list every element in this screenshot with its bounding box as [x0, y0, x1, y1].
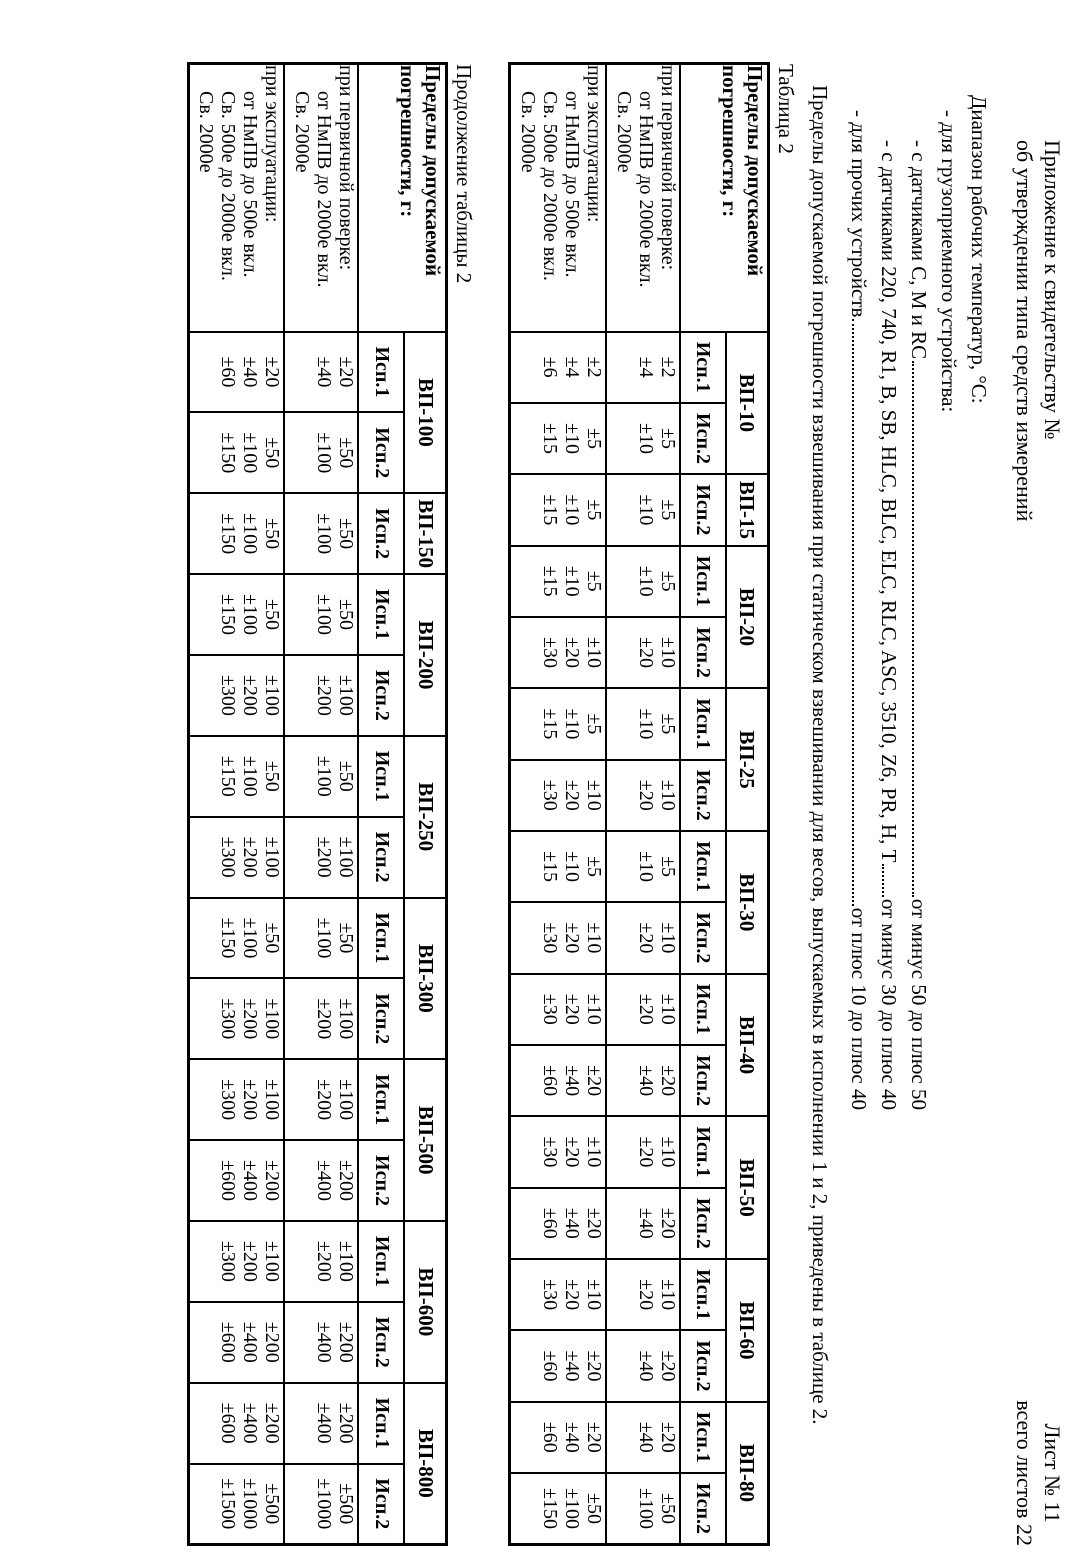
- value-line: ±10: [561, 475, 583, 544]
- operation-values-cell: ±20±40±60: [189, 332, 285, 413]
- value-line: ±100: [262, 656, 284, 735]
- table-corner-label: Пределы допускаемойпогрешности, г:: [680, 64, 769, 332]
- verification-values-cell: ±10±20: [606, 1259, 680, 1330]
- temp-line: - для прочих устройствот плюс 10 до плюс…: [844, 110, 874, 1110]
- value-line: ±10: [635, 547, 657, 616]
- execution-header: Исп.2: [359, 1140, 405, 1221]
- value-line: ±500: [336, 1465, 358, 1543]
- model-header: ВП-10: [726, 332, 769, 475]
- temp-line-value: от плюс 10 до плюс 40: [844, 908, 874, 1110]
- operation-values-cell: ±5±10±15: [510, 688, 606, 759]
- value-line: ±20: [635, 1117, 657, 1186]
- value-line: ±150: [218, 494, 240, 573]
- value-line: ±20: [561, 1260, 583, 1329]
- operation-values-cell: ±100±200±300: [189, 1221, 285, 1302]
- value-line: ±10: [583, 975, 605, 1044]
- value-line: ±100: [240, 494, 262, 573]
- verification-values-cell: ±200±400: [285, 1140, 359, 1221]
- row-label: Св. 2000е: [517, 65, 539, 331]
- value-row: при первичной поверке:от НмПВ до 2000е в…: [285, 64, 359, 1545]
- value-line: ±300: [218, 1222, 240, 1301]
- verification-values-cell: ±100±200: [285, 1221, 359, 1302]
- execution-header: Исп.1: [680, 1402, 726, 1473]
- sheet-number-line2: всего листов 22: [1010, 1400, 1038, 1546]
- execution-header: Исп.1: [680, 831, 726, 902]
- value-line: ±100: [314, 575, 336, 654]
- value-line: ±30: [539, 761, 561, 830]
- operation-values-cell: ±50±100±150: [189, 574, 285, 655]
- value-line: ±20: [657, 1189, 679, 1258]
- value-line: ±15: [539, 832, 561, 901]
- row-label: от НмПВ до 2000е вкл.: [314, 65, 336, 331]
- value-line: ±10: [583, 618, 605, 687]
- model-header: ВП-80: [726, 1402, 769, 1545]
- value-line: ±200: [314, 1222, 336, 1301]
- temperature-lines: - для грузоприемного устройства:- с датч…: [844, 95, 964, 1560]
- row-group-title: при первичной поверке:: [657, 65, 679, 331]
- operation-values-cell: ±100±200±300: [189, 817, 285, 898]
- operation-values-cell: ±100±200±300: [189, 1059, 285, 1140]
- dotted-leader: [882, 864, 885, 896]
- value-line: ±50: [336, 413, 358, 492]
- model-header: ВП-20: [726, 546, 769, 689]
- value-line: ±40: [561, 1046, 583, 1115]
- value-line: ±10: [635, 475, 657, 544]
- value-line: ±100: [336, 656, 358, 735]
- value-line: ±40: [561, 1189, 583, 1258]
- value-line: ±200: [336, 1141, 358, 1220]
- operation-values-cell: ±200±400±600: [189, 1383, 285, 1464]
- table2-caption: Продолжение таблицы 2: [451, 64, 479, 1560]
- value-line: ±40: [635, 1331, 657, 1400]
- value-line: ±20: [262, 333, 284, 412]
- table-corner-label: Пределы допускаемойпогрешности, г:: [359, 64, 448, 332]
- execution-header: Исп.2: [359, 1464, 405, 1545]
- value-line: ±5: [583, 404, 605, 473]
- model-header-row: Пределы допускаемойпогрешности, г:ВП-10В…: [726, 64, 769, 1545]
- value-line: ±200: [262, 1303, 284, 1382]
- value-line: ±400: [314, 1303, 336, 1382]
- value-line: ±50: [262, 575, 284, 654]
- value-line: ±100: [240, 575, 262, 654]
- value-line: ±20: [635, 975, 657, 1044]
- verification-values-cell: ±50±100: [285, 574, 359, 655]
- value-line: ±400: [314, 1141, 336, 1220]
- verification-values-cell: ±50±100: [285, 898, 359, 979]
- value-line: ±10: [657, 618, 679, 687]
- value-line: ±30: [539, 903, 561, 972]
- verification-values-cell: ±10±20: [606, 760, 680, 831]
- value-line: ±100: [336, 818, 358, 897]
- model-header: ВП-500: [405, 1059, 448, 1221]
- value-line: ±4: [561, 333, 583, 402]
- row-label: Св. 500е до 2000е вкл.: [218, 65, 240, 331]
- value-line: ±20: [561, 761, 583, 830]
- value-line: ±20: [561, 1117, 583, 1186]
- row-group-label: при эксплуатации:от НмПВ до 500е вкл.Св.…: [510, 64, 606, 332]
- execution-header: Исп.2: [680, 617, 726, 688]
- verification-values-cell: ±10±20: [606, 617, 680, 688]
- value-line: ±150: [218, 737, 240, 816]
- model-header: ВП-150: [405, 493, 448, 574]
- value-line: ±200: [336, 1384, 358, 1463]
- model-header: ВП-300: [405, 898, 448, 1060]
- verification-values-cell: ±5±10: [606, 474, 680, 545]
- row-label: от НмПВ до 2000е вкл.: [635, 65, 657, 331]
- model-header: ВП-200: [405, 574, 448, 736]
- value-line: ±20: [657, 1403, 679, 1472]
- value-line: ±10: [583, 1260, 605, 1329]
- operation-values-cell: ±5±10±15: [510, 546, 606, 617]
- model-header: ВП-100: [405, 332, 448, 494]
- error-limits-table-2: Пределы допускаемойпогрешности, г:ВП-100…: [187, 62, 449, 1546]
- temp-line-text: - с датчиками 220, 740, R1, B, SB, HLC, …: [874, 140, 904, 862]
- model-header: ВП-60: [726, 1259, 769, 1402]
- temp-line: - с датчиками С, М и RCот минус 50 до пл…: [904, 140, 934, 1110]
- value-line: ±30: [539, 1260, 561, 1329]
- value-line: ±6: [539, 333, 561, 402]
- value-line: ±300: [218, 1060, 240, 1139]
- value-line: ±100: [314, 413, 336, 492]
- execution-header: Исп.1: [680, 1116, 726, 1187]
- value-line: ±5: [583, 689, 605, 758]
- row-group-label: при эксплуатации:от НмПВ до 500е вкл.Св.…: [189, 64, 285, 332]
- execution-header: Исп.2: [359, 412, 405, 493]
- execution-header: Исп.1: [359, 332, 405, 413]
- value-line: ±400: [240, 1303, 262, 1382]
- value-line: ±50: [583, 1474, 605, 1543]
- temp-line-text: - с датчиками С, М и RC: [904, 140, 934, 359]
- verification-values-cell: ±200±400: [285, 1383, 359, 1464]
- value-line: ±200: [240, 1222, 262, 1301]
- value-line: ±40: [635, 1046, 657, 1115]
- value-line: ±20: [583, 1189, 605, 1258]
- value-line: ±100: [262, 1060, 284, 1139]
- value-line: ±500: [262, 1465, 284, 1543]
- value-line: ±5: [657, 475, 679, 544]
- value-line: ±10: [583, 761, 605, 830]
- value-line: ±10: [635, 832, 657, 901]
- execution-header: Исп.2: [680, 1045, 726, 1116]
- value-line: ±400: [240, 1141, 262, 1220]
- value-line: ±2: [583, 333, 605, 402]
- value-line: ±50: [262, 494, 284, 573]
- value-line: ±10: [657, 761, 679, 830]
- row-group-title: при эксплуатации:: [583, 65, 605, 331]
- execution-header: Исп.2: [680, 1473, 726, 1545]
- value-line: ±200: [314, 1060, 336, 1139]
- verification-values-cell: ±5±10: [606, 403, 680, 474]
- value-line: ±30: [539, 975, 561, 1044]
- value-line: ±400: [314, 1384, 336, 1463]
- verification-values-cell: ±20±40: [606, 1045, 680, 1116]
- corner-line: Пределы допускаемой: [421, 65, 446, 331]
- value-line: ±200: [240, 656, 262, 735]
- verification-values-cell: ±100±200: [285, 978, 359, 1059]
- verification-values-cell: ±200±400: [285, 1302, 359, 1383]
- value-line: ±20: [561, 618, 583, 687]
- value-line: ±100: [314, 899, 336, 978]
- value-line: ±5: [583, 475, 605, 544]
- temp-line: - для грузоприемного устройства:: [934, 110, 964, 1560]
- value-line: ±10: [657, 1117, 679, 1186]
- operation-values-cell: ±500±1000±1500: [189, 1464, 285, 1545]
- execution-header: Исп.1: [359, 898, 405, 979]
- value-row: при эксплуатации:от НмПВ до 500е вкл.Св.…: [510, 64, 606, 1545]
- operation-values-cell: ±20±40±60: [510, 1045, 606, 1116]
- value-line: ±100: [262, 818, 284, 897]
- operation-values-cell: ±10±20±30: [510, 902, 606, 973]
- verification-values-cell: ±100±200: [285, 1059, 359, 1140]
- value-line: ±150: [218, 413, 240, 492]
- temp-line-text: - для грузоприемного устройства:: [934, 110, 964, 412]
- execution-header: Исп.1: [680, 974, 726, 1045]
- value-line: ±600: [218, 1384, 240, 1463]
- value-line: ±4: [635, 333, 657, 402]
- execution-header: Исп.1: [359, 1383, 405, 1464]
- appendix-note-line2: об утверждении типа средств измерений: [1010, 140, 1038, 521]
- execution-header: Исп.2: [359, 493, 405, 574]
- value-line: ±150: [218, 575, 240, 654]
- limits-paragraph: Пределы допускаемой погрешности взвешива…: [806, 85, 834, 1546]
- execution-header: Исп.2: [680, 1330, 726, 1401]
- row-label: Св. 2000е: [292, 65, 314, 331]
- execution-header: Исп.2: [359, 1302, 405, 1383]
- operation-values-cell: ±20±40±60: [510, 1402, 606, 1473]
- value-line: ±100: [262, 979, 284, 1058]
- rotated-document-page: Приложение к свидетельству № об утвержде…: [0, 0, 1092, 1560]
- sheet-number-line1: Лист № 11: [1038, 1400, 1066, 1546]
- value-line: ±40: [240, 333, 262, 412]
- value-line: ±20: [635, 903, 657, 972]
- verification-values-cell: ±20±40: [606, 1330, 680, 1401]
- verification-values-cell: ±5±10: [606, 546, 680, 617]
- verification-values-cell: ±10±20: [606, 902, 680, 973]
- verification-values-cell: ±5±10: [606, 831, 680, 902]
- operation-values-cell: ±5±10±15: [510, 474, 606, 545]
- execution-header: Исп.2: [359, 655, 405, 736]
- model-header: ВП-40: [726, 974, 769, 1117]
- dotted-leader: [852, 319, 855, 905]
- value-line: ±40: [561, 1331, 583, 1400]
- row-label: от НмПВ до 500е вкл.: [561, 65, 583, 331]
- operation-values-cell: ±20±40±60: [510, 1188, 606, 1259]
- value-line: ±10: [635, 404, 657, 473]
- sheet-number: Лист № 11 всего листов 22: [1010, 1400, 1066, 1546]
- value-line: ±200: [262, 1141, 284, 1220]
- value-line: ±50: [336, 494, 358, 573]
- temperature-title: Диапазон рабочих температур, °С:: [964, 95, 994, 1560]
- value-line: ±300: [218, 979, 240, 1058]
- value-line: ±5: [657, 547, 679, 616]
- row-label: от НмПВ до 500е вкл.: [240, 65, 262, 331]
- value-line: ±60: [218, 333, 240, 412]
- value-row: при первичной поверке:от НмПВ до 2000е в…: [606, 64, 680, 1545]
- value-line: ±15: [539, 404, 561, 473]
- value-line: ±1500: [218, 1465, 240, 1543]
- verification-values-cell: ±500±1000: [285, 1464, 359, 1545]
- value-line: ±5: [583, 832, 605, 901]
- value-line: ±60: [539, 1189, 561, 1258]
- execution-header: Исп.1: [359, 1059, 405, 1140]
- dotted-leader: [912, 361, 915, 897]
- model-header: ВП-600: [405, 1221, 448, 1383]
- execution-header: Исп.2: [680, 902, 726, 973]
- value-line: ±40: [635, 1403, 657, 1472]
- value-line: ±200: [336, 1303, 358, 1382]
- value-line: ±100: [314, 494, 336, 573]
- value-line: ±10: [583, 1117, 605, 1186]
- corner-line: погрешности, г:: [717, 65, 742, 331]
- value-line: ±50: [336, 575, 358, 654]
- execution-header: Исп.2: [680, 474, 726, 545]
- value-line: ±20: [583, 1331, 605, 1400]
- execution-header: Исп.2: [680, 403, 726, 474]
- value-line: ±20: [561, 903, 583, 972]
- value-line: ±200: [262, 1384, 284, 1463]
- operation-values-cell: ±100±200±300: [189, 978, 285, 1059]
- operation-values-cell: ±200±400±600: [189, 1302, 285, 1383]
- execution-header: Исп.1: [680, 546, 726, 617]
- value-row: при эксплуатации:от НмПВ до 500е вкл.Св.…: [189, 64, 285, 1545]
- verification-values-cell: ±20±40: [606, 1402, 680, 1473]
- value-line: ±10: [561, 689, 583, 758]
- operation-values-cell: ±50±100±150: [510, 1473, 606, 1545]
- execution-header: Исп.1: [680, 332, 726, 403]
- temp-line-value: от минус 50 до плюс 50: [904, 899, 934, 1110]
- value-line: ±10: [657, 903, 679, 972]
- verification-values-cell: ±2±4: [606, 332, 680, 403]
- model-header: ВП-50: [726, 1116, 769, 1259]
- verification-values-cell: ±50±100: [606, 1473, 680, 1545]
- operation-values-cell: ±50±100±150: [189, 493, 285, 574]
- verification-values-cell: ±100±200: [285, 655, 359, 736]
- value-line: ±15: [539, 475, 561, 544]
- value-line: ±600: [218, 1141, 240, 1220]
- operation-values-cell: ±10±20±30: [510, 760, 606, 831]
- row-group-title: при эксплуатации:: [262, 65, 284, 331]
- value-line: ±30: [539, 618, 561, 687]
- operation-values-cell: ±100±200±300: [189, 655, 285, 736]
- value-line: ±50: [262, 413, 284, 492]
- row-label: Св. 2000е: [613, 65, 635, 331]
- document-content: Приложение к свидетельству № об утвержде…: [187, 0, 1092, 1560]
- value-line: ±200: [314, 656, 336, 735]
- value-line: ±100: [240, 899, 262, 978]
- value-line: ±50: [336, 899, 358, 978]
- value-line: ±300: [218, 818, 240, 897]
- operation-values-cell: ±50±100±150: [189, 412, 285, 493]
- execution-header: Исп.2: [359, 817, 405, 898]
- value-line: ±60: [539, 1403, 561, 1472]
- value-line: ±50: [262, 899, 284, 978]
- corner-line: погрешности, г:: [396, 65, 421, 331]
- operation-values-cell: ±50±100±150: [189, 736, 285, 817]
- value-line: ±20: [583, 1046, 605, 1115]
- value-line: ±5: [657, 832, 679, 901]
- operation-values-cell: ±5±10±15: [510, 403, 606, 474]
- value-line: ±200: [314, 979, 336, 1058]
- operation-values-cell: ±20±40±60: [510, 1330, 606, 1401]
- value-line: ±10: [561, 547, 583, 616]
- value-line: ±20: [583, 1403, 605, 1472]
- value-line: ±10: [657, 975, 679, 1044]
- page-header: Приложение к свидетельству № об утвержде…: [1010, 140, 1066, 1546]
- value-line: ±100: [240, 737, 262, 816]
- value-line: ±10: [583, 903, 605, 972]
- appendix-note: Приложение к свидетельству № об утвержде…: [1010, 140, 1066, 521]
- value-line: ±1000: [240, 1465, 262, 1543]
- row-group-label: при первичной поверке:от НмПВ до 2000е в…: [285, 64, 359, 332]
- execution-header: Исп.1: [680, 1259, 726, 1330]
- temperature-section: Диапазон рабочих температур, °С: - для г…: [844, 95, 994, 1560]
- value-line: ±100: [314, 737, 336, 816]
- value-line: ±10: [561, 832, 583, 901]
- value-line: ±100: [336, 1222, 358, 1301]
- value-line: ±50: [657, 1474, 679, 1543]
- value-line: ±300: [218, 656, 240, 735]
- value-line: ±20: [635, 618, 657, 687]
- value-line: ±60: [539, 1046, 561, 1115]
- execution-header: Исп.2: [680, 760, 726, 831]
- verification-values-cell: ±20±40: [606, 1188, 680, 1259]
- verification-values-cell: ±50±100: [285, 736, 359, 817]
- value-line: ±200: [314, 818, 336, 897]
- value-line: ±60: [539, 1331, 561, 1400]
- value-line: ±40: [561, 1403, 583, 1472]
- operation-values-cell: ±2±4±6: [510, 332, 606, 403]
- value-line: ±30: [539, 1117, 561, 1186]
- corner-line: Пределы допускаемой: [742, 65, 767, 331]
- operation-values-cell: ±200±400±600: [189, 1140, 285, 1221]
- value-line: ±100: [635, 1474, 657, 1543]
- model-header: ВП-250: [405, 736, 448, 898]
- value-line: ±600: [218, 1303, 240, 1382]
- model-header-row: Пределы допускаемойпогрешности, г:ВП-100…: [405, 64, 448, 1545]
- value-line: ±150: [539, 1474, 561, 1543]
- appendix-note-line1: Приложение к свидетельству №: [1038, 140, 1066, 521]
- value-line: ±100: [561, 1474, 583, 1543]
- table1-caption: Таблица 2: [772, 64, 800, 1560]
- temp-line: - с датчиками 220, 740, R1, B, SB, HLC, …: [874, 140, 904, 1110]
- verification-values-cell: ±50±100: [285, 493, 359, 574]
- operation-values-cell: ±10±20±30: [510, 974, 606, 1045]
- value-line: ±100: [336, 1060, 358, 1139]
- verification-values-cell: ±100±200: [285, 817, 359, 898]
- row-group-label: при первичной поверке:от НмПВ до 2000е в…: [606, 64, 680, 332]
- execution-header: Исп.1: [359, 736, 405, 817]
- value-line: ±2: [657, 333, 679, 402]
- model-header: ВП-30: [726, 831, 769, 974]
- value-line: ±50: [262, 737, 284, 816]
- value-line: ±5: [657, 689, 679, 758]
- value-line: ±20: [657, 1046, 679, 1115]
- value-line: ±10: [635, 689, 657, 758]
- execution-header: Исп.1: [359, 574, 405, 655]
- value-line: ±400: [240, 1384, 262, 1463]
- value-line: ±200: [240, 1060, 262, 1139]
- execution-header: Исп.2: [359, 978, 405, 1059]
- model-header: ВП-25: [726, 688, 769, 831]
- value-line: ±100: [262, 1222, 284, 1301]
- value-line: ±20: [657, 1331, 679, 1400]
- operation-values-cell: ±10±20±30: [510, 617, 606, 688]
- value-line: ±15: [539, 547, 561, 616]
- verification-values-cell: ±5±10: [606, 688, 680, 759]
- row-label: Св. 500е до 2000е вкл.: [539, 65, 561, 331]
- value-line: ±50: [336, 737, 358, 816]
- value-line: ±5: [657, 404, 679, 473]
